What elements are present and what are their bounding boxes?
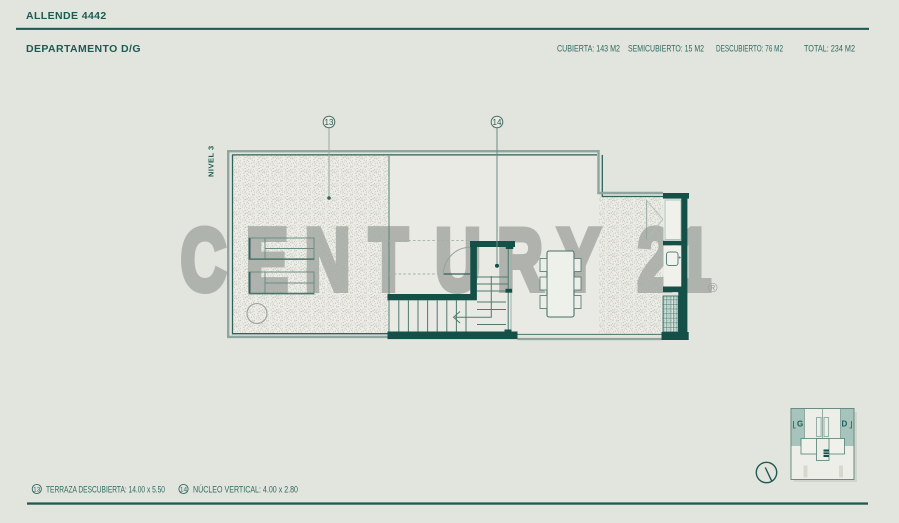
svg-text:13: 13 <box>33 487 41 494</box>
svg-text:®: ® <box>708 280 718 295</box>
svg-text:NIVEL 3: NIVEL 3 <box>207 145 216 177</box>
svg-text:CUBIERTA: 143 M2: CUBIERTA: 143 M2 <box>557 44 620 54</box>
svg-text:DEPARTAMENTO D/G: DEPARTAMENTO D/G <box>26 43 141 55</box>
svg-text:ALLENDE 4442: ALLENDE 4442 <box>26 10 107 22</box>
svg-text:NÚCLEO VERTICAL: 4.00 x 2.80: NÚCLEO VERTICAL: 4.00 x 2.80 <box>193 485 298 495</box>
svg-text:D: D <box>842 420 848 429</box>
svg-text:14: 14 <box>493 118 502 127</box>
svg-text:TERRAZA DESCUBIERTA: 14.00 x 5: TERRAZA DESCUBIERTA: 14.00 x 5.50 <box>46 485 165 495</box>
svg-text:G: G <box>797 420 803 429</box>
svg-text:SEMICUBIERTO: 15 M2: SEMICUBIERTO: 15 M2 <box>628 44 704 54</box>
svg-text:DESCUBIERTO: 76 M2: DESCUBIERTO: 76 M2 <box>716 44 783 54</box>
svg-text:14: 14 <box>180 487 188 494</box>
svg-text:TOTAL: 234 M2: TOTAL: 234 M2 <box>804 44 855 54</box>
svg-text:13: 13 <box>325 118 334 127</box>
